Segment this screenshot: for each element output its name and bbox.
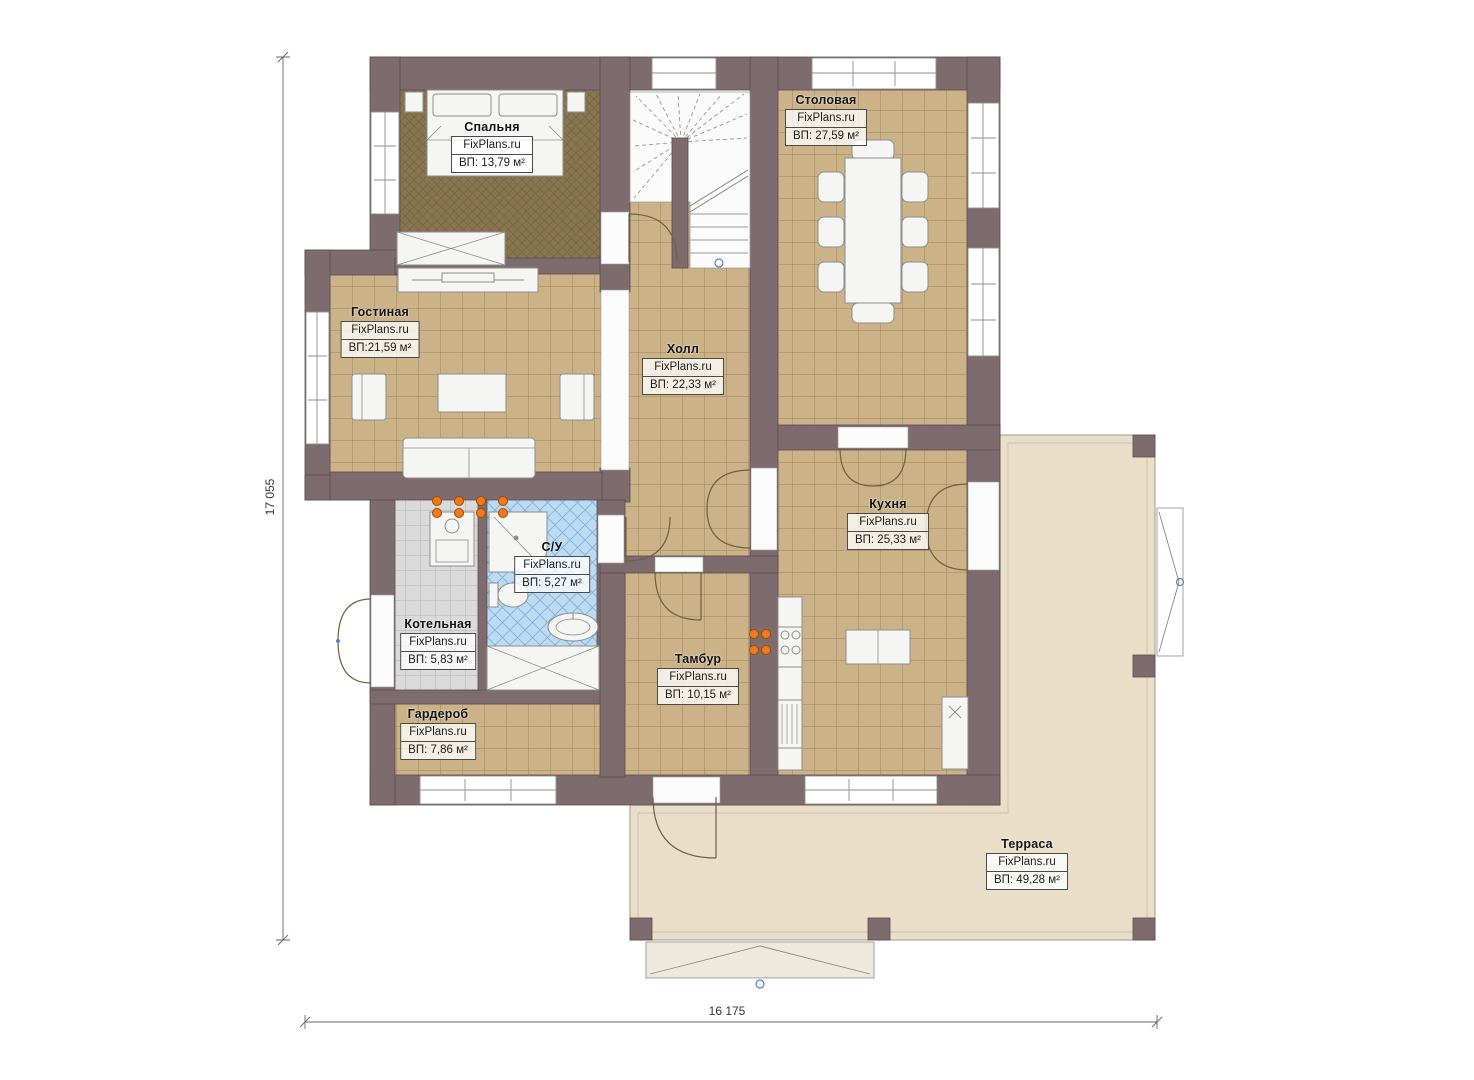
- watermark-text: FixPlans.ru: [401, 724, 475, 742]
- watermark-text: FixPlans.ru: [848, 514, 928, 532]
- watermark-text: FixPlans.ru: [643, 359, 723, 377]
- room-name: Тамбур: [657, 652, 739, 666]
- terrace-steps: [646, 942, 874, 988]
- room-label-terrace: Терраса FixPlans.ru ВП: 49,28 м²: [986, 837, 1068, 890]
- dimension-width: 16 175: [695, 1004, 759, 1018]
- room-label-dining: Столовая FixPlans.ru ВП: 27,59 м²: [785, 93, 867, 146]
- dimension-height: 17 055: [263, 465, 277, 529]
- watermark-text: FixPlans.ru: [658, 669, 738, 687]
- hall-closet: [487, 646, 599, 690]
- room-name: Холл: [642, 342, 724, 356]
- room-info-box: FixPlans.ru ВП: 25,33 м²: [847, 513, 929, 550]
- room-name: Гардероб: [400, 707, 476, 721]
- room-area: ВП: 22,33 м²: [643, 377, 723, 394]
- watermark-text: FixPlans.ru: [452, 137, 532, 155]
- fridge: [778, 700, 802, 748]
- floor-plan-svg: [0, 0, 1474, 1080]
- living-window: [306, 312, 329, 444]
- floor-plan-page: Спальня FixPlans.ru ВП: 13,79 м² Столова…: [0, 0, 1474, 1080]
- nightstand-left: [405, 92, 423, 112]
- room-label-vestibule: Тамбур FixPlans.ru ВП: 10,15 м²: [657, 652, 739, 705]
- stair-wall: [672, 138, 688, 268]
- room-label-bedroom: Спальня FixPlans.ru ВП: 13,79 м²: [451, 120, 533, 173]
- watermark-text: FixPlans.ru: [786, 110, 866, 128]
- watermark-text: FixPlans.ru: [342, 322, 419, 340]
- watermark-text: FixPlans.ru: [987, 854, 1067, 872]
- wardrobe-bottom-window: [420, 776, 556, 804]
- dining-right-window-2: [968, 248, 999, 356]
- room-area: ВП: 10,15 м²: [658, 687, 738, 704]
- terrace-side-steps: [1157, 508, 1184, 656]
- room-area: ВП: 13,79 м²: [452, 155, 532, 172]
- room-info-box: FixPlans.ru ВП: 7,86 м²: [400, 723, 476, 760]
- room-area: ВП:21,59 м²: [342, 340, 419, 357]
- boiler-exterior-door: [336, 599, 371, 683]
- sofa: [403, 438, 535, 478]
- coffee-table: [438, 374, 506, 412]
- room-name: Терраса: [986, 837, 1068, 851]
- room-label-wardrobe: Гардероб FixPlans.ru ВП: 7,86 м²: [400, 707, 476, 760]
- room-label-bathroom: С/У FixPlans.ru ВП: 5,27 м²: [514, 540, 590, 593]
- room-label-living: Гостиная FixPlans.ru ВП:21,59 м²: [341, 305, 420, 358]
- kitchen-bottom-window: [805, 776, 937, 804]
- room-name: Котельная: [400, 617, 476, 631]
- room-area: ВП: 5,83 м²: [401, 652, 475, 669]
- stairs-top-window: [652, 58, 716, 89]
- room-area: ВП: 27,59 м²: [786, 128, 866, 145]
- room-label-kitchen: Кухня FixPlans.ru ВП: 25,33 м²: [847, 497, 929, 550]
- room-info-box: FixPlans.ru ВП: 22,33 м²: [642, 358, 724, 395]
- kitchen-right-unit: [942, 697, 968, 769]
- room-label-boiler: Котельная FixPlans.ru ВП: 5,83 м²: [400, 617, 476, 670]
- bathroom-sink: [548, 613, 598, 641]
- room-name: Кухня: [847, 497, 929, 511]
- bedroom-window: [371, 112, 399, 214]
- watermark-text: FixPlans.ru: [401, 634, 475, 652]
- tv-console: [398, 268, 538, 292]
- dining-right-window-1: [968, 103, 999, 208]
- room-info-box: FixPlans.ru ВП: 10,15 м²: [657, 668, 739, 705]
- room-name: С/У: [514, 540, 590, 554]
- kitchen-counter: [778, 597, 802, 770]
- room-info-box: FixPlans.ru ВП:21,59 м²: [341, 321, 420, 358]
- room-area: ВП: 7,86 м²: [401, 742, 475, 759]
- room-info-box: FixPlans.ru ВП: 5,83 м²: [400, 633, 476, 670]
- room-name: Столовая: [785, 93, 867, 107]
- dining-table: [845, 158, 901, 303]
- room-info-box: FixPlans.ru ВП: 27,59 м²: [785, 109, 867, 146]
- armchair-left: [352, 374, 386, 420]
- room-info-box: FixPlans.ru ВП: 5,27 м²: [514, 556, 590, 593]
- room-area: ВП: 25,33 м²: [848, 532, 928, 549]
- watermark-text: FixPlans.ru: [515, 557, 589, 575]
- room-label-hall: Холл FixPlans.ru ВП: 22,33 м²: [642, 342, 724, 395]
- bedroom-closet: [397, 232, 505, 265]
- room-area: ВП: 49,28 м²: [987, 872, 1067, 889]
- room-info-box: FixPlans.ru ВП: 13,79 м²: [451, 136, 533, 173]
- armchair-right: [560, 374, 594, 420]
- room-area: ВП: 5,27 м²: [515, 575, 589, 592]
- room-info-box: FixPlans.ru ВП: 49,28 м²: [986, 853, 1068, 890]
- kitchen-island: [846, 630, 910, 664]
- room-name: Гостиная: [341, 305, 420, 319]
- room-name: Спальня: [451, 120, 533, 134]
- dining-top-window: [812, 58, 936, 89]
- boiler-unit: [430, 512, 474, 566]
- nightstand-right: [567, 92, 585, 112]
